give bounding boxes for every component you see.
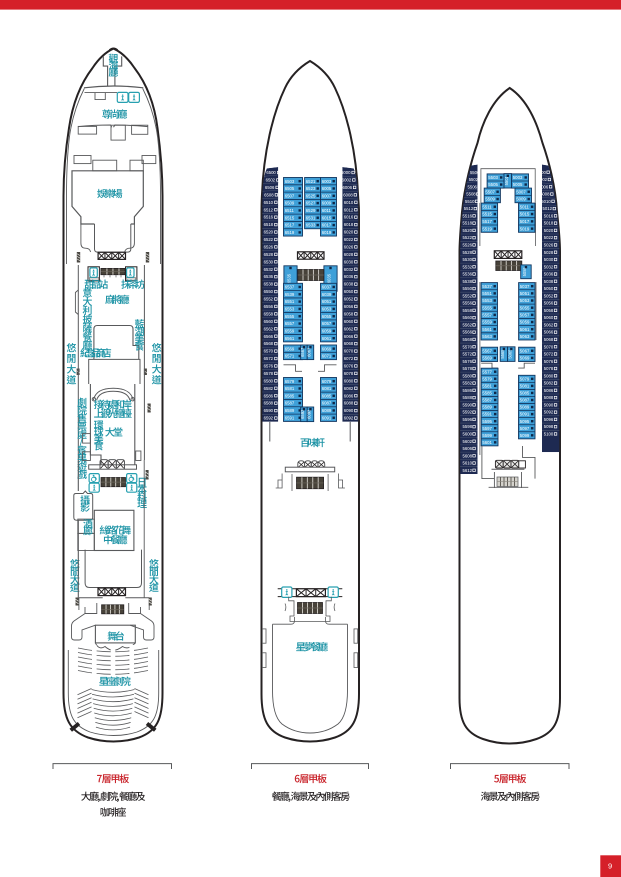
svg-text:5532: 5532 bbox=[463, 264, 473, 269]
svg-text:6529: 6529 bbox=[306, 208, 316, 213]
svg-text:6052: 6052 bbox=[344, 297, 354, 302]
svg-text:6079: 6079 bbox=[322, 379, 332, 384]
svg-text:6055: 6055 bbox=[322, 314, 332, 319]
svg-text:6533: 6533 bbox=[306, 223, 316, 228]
svg-text:5085: 5085 bbox=[520, 391, 530, 396]
svg-text:5612: 5612 bbox=[463, 468, 473, 473]
svg-text:6507: 6507 bbox=[285, 193, 295, 198]
svg-text:6003: 6003 bbox=[322, 179, 332, 184]
svg-text:5052: 5052 bbox=[544, 293, 554, 298]
svg-text:5526: 5526 bbox=[463, 242, 473, 247]
svg-text:5062: 5062 bbox=[544, 322, 554, 327]
svg-text:5591: 5591 bbox=[482, 412, 492, 417]
svg-text:5020: 5020 bbox=[544, 228, 554, 233]
svg-text:5538: 5538 bbox=[463, 279, 473, 284]
svg-text:6580: 6580 bbox=[264, 378, 274, 383]
svg-text:5519: 5519 bbox=[482, 226, 492, 231]
svg-text:5568: 5568 bbox=[463, 337, 473, 342]
svg-text:5516: 5516 bbox=[463, 213, 473, 218]
svg-text:5508: 5508 bbox=[466, 192, 476, 197]
svg-text:5005: 5005 bbox=[513, 182, 523, 187]
svg-text:5060: 5060 bbox=[544, 315, 554, 320]
svg-text:6081: 6081 bbox=[322, 386, 332, 391]
svg-text:5072: 5072 bbox=[544, 352, 554, 357]
svg-text:6520: 6520 bbox=[264, 230, 274, 235]
svg-text:5100: 5100 bbox=[544, 432, 554, 437]
svg-text:5028: 5028 bbox=[544, 250, 554, 255]
svg-text:5550: 5550 bbox=[463, 286, 473, 291]
svg-text:6551: 6551 bbox=[285, 299, 295, 304]
svg-text:6531: 6531 bbox=[306, 215, 316, 220]
svg-text:5597: 5597 bbox=[482, 426, 492, 431]
svg-text:5563: 5563 bbox=[482, 334, 492, 339]
svg-text:6506: 6506 bbox=[265, 185, 275, 190]
svg-text:5559: 5559 bbox=[482, 320, 492, 325]
svg-text:6076: 6076 bbox=[344, 364, 354, 369]
svg-text:5078: 5078 bbox=[544, 366, 554, 371]
svg-text:5087: 5087 bbox=[520, 398, 530, 403]
svg-text:5608: 5608 bbox=[463, 453, 473, 458]
svg-text:6500: 6500 bbox=[266, 170, 276, 175]
svg-text:6535: 6535 bbox=[287, 273, 292, 283]
svg-text:5019: 5019 bbox=[520, 226, 530, 231]
svg-text:5036: 5036 bbox=[544, 272, 554, 277]
svg-text:5587: 5587 bbox=[482, 398, 492, 403]
svg-text:6078: 6078 bbox=[344, 371, 354, 376]
svg-text:5011: 5011 bbox=[520, 204, 530, 209]
svg-text:5561: 5561 bbox=[482, 327, 492, 332]
svg-text:5081: 5081 bbox=[520, 383, 530, 388]
svg-text:5063: 5063 bbox=[520, 334, 530, 339]
svg-text:6576: 6576 bbox=[264, 364, 274, 369]
svg-text:5032: 5032 bbox=[544, 264, 554, 269]
svg-text:6518: 6518 bbox=[264, 222, 274, 227]
svg-text:6516: 6516 bbox=[264, 215, 274, 220]
svg-text:6082: 6082 bbox=[344, 386, 354, 391]
svg-text:5055: 5055 bbox=[520, 305, 530, 310]
svg-text:6590: 6590 bbox=[264, 408, 274, 413]
svg-text:5567: 5567 bbox=[482, 348, 492, 353]
svg-text:6550: 6550 bbox=[264, 289, 274, 294]
svg-text:6008: 6008 bbox=[343, 192, 353, 197]
svg-text:6066: 6066 bbox=[344, 334, 354, 339]
svg-text:6032: 6032 bbox=[344, 267, 354, 272]
svg-text:6526: 6526 bbox=[264, 244, 274, 249]
svg-text:5509: 5509 bbox=[485, 197, 495, 202]
svg-text:6556: 6556 bbox=[264, 304, 274, 309]
svg-text:5500: 5500 bbox=[470, 170, 480, 175]
svg-text:5505: 5505 bbox=[488, 182, 498, 187]
svg-text:6005: 6005 bbox=[322, 186, 332, 191]
svg-text:5592: 5592 bbox=[463, 410, 473, 415]
svg-text:5566: 5566 bbox=[463, 330, 473, 335]
svg-text:6007: 6007 bbox=[322, 193, 332, 198]
svg-text:5059: 5059 bbox=[520, 320, 530, 325]
svg-text:6089: 6089 bbox=[322, 408, 332, 413]
svg-text:5512: 5512 bbox=[464, 206, 474, 211]
svg-text:6058: 6058 bbox=[344, 311, 354, 316]
svg-text:6528: 6528 bbox=[264, 252, 274, 257]
svg-text:5067: 5067 bbox=[520, 348, 530, 353]
svg-text:5026: 5026 bbox=[544, 242, 554, 247]
svg-text:5572: 5572 bbox=[463, 352, 473, 357]
svg-text:5589: 5589 bbox=[482, 405, 492, 410]
svg-text:5008: 5008 bbox=[540, 192, 550, 197]
svg-text:5009: 5009 bbox=[516, 197, 526, 202]
svg-text:5069: 5069 bbox=[520, 356, 530, 361]
svg-text:5590: 5590 bbox=[463, 402, 473, 407]
svg-text:5577: 5577 bbox=[482, 369, 492, 374]
svg-text:6530: 6530 bbox=[264, 259, 274, 264]
svg-text:5000: 5000 bbox=[536, 170, 546, 175]
svg-text:6566: 6566 bbox=[264, 334, 274, 339]
svg-text:6010: 6010 bbox=[344, 200, 354, 205]
svg-text:5038: 5038 bbox=[544, 279, 554, 284]
svg-text:6553: 6553 bbox=[285, 307, 295, 312]
svg-text:6053: 6053 bbox=[322, 307, 332, 312]
svg-text:6515: 6515 bbox=[285, 215, 295, 220]
svg-text:6503: 6503 bbox=[285, 179, 295, 184]
svg-text:6560: 6560 bbox=[264, 319, 274, 324]
svg-text:5562: 5562 bbox=[463, 322, 473, 327]
svg-text:6567: 6567 bbox=[300, 347, 305, 357]
svg-text:6059: 6059 bbox=[322, 328, 332, 333]
svg-text:5030: 5030 bbox=[544, 257, 554, 262]
svg-text:6591: 6591 bbox=[285, 415, 295, 420]
svg-text:6051: 6051 bbox=[322, 299, 332, 304]
svg-text:5536: 5536 bbox=[463, 272, 473, 277]
svg-text:6017: 6017 bbox=[322, 223, 332, 228]
svg-text:5098: 5098 bbox=[544, 424, 554, 429]
svg-text:5551: 5551 bbox=[482, 291, 492, 296]
svg-text:6069: 6069 bbox=[322, 346, 332, 351]
svg-text:5537: 5537 bbox=[482, 284, 492, 289]
svg-text:6011: 6011 bbox=[322, 208, 332, 213]
svg-text:6512: 6512 bbox=[264, 207, 274, 212]
svg-text:5582: 5582 bbox=[463, 381, 473, 386]
svg-text:5580: 5580 bbox=[463, 373, 473, 378]
svg-text:5556: 5556 bbox=[463, 301, 473, 306]
svg-text:5579: 5579 bbox=[482, 376, 492, 381]
svg-text:6026: 6026 bbox=[344, 244, 354, 249]
svg-text:5576: 5576 bbox=[463, 359, 473, 364]
svg-text:6508: 6508 bbox=[264, 192, 274, 197]
svg-text:6592: 6592 bbox=[264, 416, 274, 421]
svg-text:6092: 6092 bbox=[344, 416, 354, 421]
svg-text:5007: 5007 bbox=[516, 189, 526, 194]
svg-text:6539: 6539 bbox=[285, 292, 295, 297]
svg-text:5090: 5090 bbox=[544, 402, 554, 407]
svg-text:5570: 5570 bbox=[463, 344, 473, 349]
svg-text:6510: 6510 bbox=[264, 200, 274, 205]
svg-text:5602: 5602 bbox=[463, 439, 473, 444]
svg-text:5079: 5079 bbox=[520, 376, 530, 381]
svg-text:6060: 6060 bbox=[344, 319, 354, 324]
svg-text:5595: 5595 bbox=[482, 419, 492, 424]
svg-text:5610: 5610 bbox=[463, 461, 473, 466]
svg-text:5601: 5601 bbox=[482, 440, 492, 445]
svg-text:6523: 6523 bbox=[306, 186, 316, 191]
svg-text:5600: 5600 bbox=[463, 432, 473, 437]
svg-text:6071: 6071 bbox=[322, 354, 332, 359]
svg-text:5086: 5086 bbox=[544, 388, 554, 393]
svg-text:6039: 6039 bbox=[322, 292, 332, 297]
svg-text:5552: 5552 bbox=[463, 293, 473, 298]
svg-text:6536: 6536 bbox=[264, 274, 274, 279]
svg-text:6093: 6093 bbox=[306, 409, 311, 419]
svg-text:5585: 5585 bbox=[482, 391, 492, 396]
svg-text:5522: 5522 bbox=[463, 235, 473, 240]
svg-text:5520: 5520 bbox=[463, 228, 473, 233]
svg-text:5510: 5510 bbox=[465, 199, 475, 204]
svg-text:6519: 6519 bbox=[285, 230, 295, 235]
svg-text:6522: 6522 bbox=[264, 237, 274, 242]
svg-text:5099: 5099 bbox=[520, 433, 530, 438]
svg-text:6571: 6571 bbox=[285, 354, 295, 359]
svg-text:6009: 6009 bbox=[322, 201, 332, 206]
svg-text:6080: 6080 bbox=[344, 378, 354, 383]
svg-text:6022: 6022 bbox=[344, 237, 354, 242]
svg-text:6072: 6072 bbox=[344, 356, 354, 361]
svg-text:5016: 5016 bbox=[544, 213, 554, 218]
svg-text:6061: 6061 bbox=[322, 336, 332, 341]
svg-text:5565: 5565 bbox=[500, 349, 505, 359]
svg-text:5080: 5080 bbox=[544, 373, 554, 378]
svg-text:5053: 5053 bbox=[520, 298, 530, 303]
svg-text:6552: 6552 bbox=[264, 297, 274, 302]
svg-text:6030: 6030 bbox=[344, 259, 354, 264]
svg-text:5089: 5089 bbox=[520, 405, 530, 410]
svg-text:5581: 5581 bbox=[482, 383, 492, 388]
svg-text:5588: 5588 bbox=[463, 395, 473, 400]
svg-text:6558: 6558 bbox=[264, 311, 274, 316]
svg-text:6037: 6037 bbox=[322, 285, 332, 290]
svg-text:5091: 5091 bbox=[520, 412, 530, 417]
svg-text:6527: 6527 bbox=[306, 201, 316, 206]
svg-text:6589: 6589 bbox=[285, 408, 295, 413]
svg-text:5095: 5095 bbox=[520, 419, 530, 424]
svg-text:5057: 5057 bbox=[520, 312, 530, 317]
svg-text:5503: 5503 bbox=[488, 175, 498, 180]
svg-text:5012: 5012 bbox=[543, 206, 553, 211]
svg-text:5070: 5070 bbox=[544, 344, 554, 349]
svg-text:6006: 6006 bbox=[343, 185, 353, 190]
svg-text:6555: 6555 bbox=[285, 314, 295, 319]
svg-text:6056: 6056 bbox=[344, 304, 354, 309]
svg-text:6057: 6057 bbox=[322, 321, 332, 326]
svg-text:6572: 6572 bbox=[264, 356, 274, 361]
svg-text:6015: 6015 bbox=[322, 215, 332, 220]
svg-text:6505: 6505 bbox=[285, 186, 295, 191]
svg-text:5578: 5578 bbox=[463, 366, 473, 371]
svg-text:6067: 6067 bbox=[306, 347, 311, 357]
svg-text:5065: 5065 bbox=[507, 349, 512, 359]
svg-text:5599: 5599 bbox=[482, 433, 492, 438]
svg-text:5096: 5096 bbox=[544, 417, 554, 422]
svg-text:6511: 6511 bbox=[285, 208, 295, 213]
svg-text:5502: 5502 bbox=[469, 177, 479, 182]
svg-text:6012: 6012 bbox=[344, 207, 354, 212]
svg-text:5061: 5061 bbox=[520, 327, 530, 332]
svg-text:5518: 5518 bbox=[463, 221, 473, 226]
svg-text:5010: 5010 bbox=[541, 199, 551, 204]
svg-text:5076: 5076 bbox=[544, 359, 554, 364]
svg-text:6521: 6521 bbox=[306, 179, 316, 184]
svg-text:5528: 5528 bbox=[463, 250, 473, 255]
svg-text:6557: 6557 bbox=[285, 321, 295, 326]
svg-text:6016: 6016 bbox=[344, 215, 354, 220]
svg-text:5606: 5606 bbox=[463, 446, 473, 451]
svg-text:5596: 5596 bbox=[463, 417, 473, 422]
svg-text:5066: 5066 bbox=[544, 330, 554, 335]
svg-text:5037: 5037 bbox=[520, 284, 530, 289]
svg-text:5506: 5506 bbox=[467, 184, 477, 189]
svg-text:6588: 6588 bbox=[264, 401, 274, 406]
svg-text:5586: 5586 bbox=[463, 388, 473, 393]
svg-text:5569: 5569 bbox=[482, 356, 492, 361]
svg-text:6570: 6570 bbox=[264, 349, 274, 354]
svg-text:6537: 6537 bbox=[285, 285, 295, 290]
svg-text:5015: 5015 bbox=[520, 212, 530, 217]
svg-text:6581: 6581 bbox=[285, 386, 295, 391]
svg-text:6561: 6561 bbox=[285, 336, 295, 341]
svg-text:5068: 5068 bbox=[544, 337, 554, 342]
svg-text:6000: 6000 bbox=[341, 170, 351, 175]
svg-text:5022: 5022 bbox=[544, 235, 554, 240]
svg-text:6582: 6582 bbox=[264, 386, 274, 391]
svg-text:5517: 5517 bbox=[482, 219, 492, 224]
svg-text:6091: 6091 bbox=[322, 415, 332, 420]
svg-text:5058: 5058 bbox=[544, 308, 554, 313]
svg-text:5507: 5507 bbox=[485, 189, 495, 194]
svg-text:6502: 6502 bbox=[266, 178, 276, 183]
svg-text:5018: 5018 bbox=[544, 221, 554, 226]
svg-text:6532: 6532 bbox=[264, 267, 274, 272]
svg-text:9: 9 bbox=[608, 862, 612, 871]
svg-text:6562: 6562 bbox=[264, 326, 274, 331]
svg-text:5560: 5560 bbox=[463, 315, 473, 320]
svg-text:5092: 5092 bbox=[544, 410, 554, 415]
svg-text:5530: 5530 bbox=[463, 257, 473, 262]
svg-text:6085: 6085 bbox=[322, 393, 332, 398]
svg-text:6088: 6088 bbox=[344, 401, 354, 406]
svg-text:6018: 6018 bbox=[344, 222, 354, 227]
svg-text:6090: 6090 bbox=[344, 408, 354, 413]
svg-text:5082: 5082 bbox=[544, 381, 554, 386]
svg-text:5558: 5558 bbox=[463, 308, 473, 313]
svg-text:6587: 6587 bbox=[285, 401, 295, 406]
svg-text:5553: 5553 bbox=[482, 298, 492, 303]
svg-text:6028: 6028 bbox=[344, 252, 354, 257]
svg-text:6086: 6086 bbox=[344, 393, 354, 398]
svg-text:6517: 6517 bbox=[285, 223, 295, 228]
svg-text:6036: 6036 bbox=[344, 274, 354, 279]
svg-text:6586: 6586 bbox=[264, 393, 274, 398]
svg-text:6038: 6038 bbox=[344, 282, 354, 287]
svg-text:5003: 5003 bbox=[513, 175, 523, 180]
svg-text:5511: 5511 bbox=[482, 204, 492, 209]
svg-text:5056: 5056 bbox=[544, 301, 554, 306]
svg-text:5598: 5598 bbox=[463, 424, 473, 429]
svg-text:6569: 6569 bbox=[285, 346, 295, 351]
svg-text:5557: 5557 bbox=[482, 312, 492, 317]
svg-text:6509: 6509 bbox=[285, 201, 295, 206]
svg-text:5097: 5097 bbox=[520, 426, 530, 431]
svg-text:6020: 6020 bbox=[344, 230, 354, 235]
svg-text:6062: 6062 bbox=[344, 326, 354, 331]
svg-text:6002: 6002 bbox=[342, 178, 352, 183]
svg-text:5050: 5050 bbox=[544, 286, 554, 291]
svg-text:5051: 5051 bbox=[520, 291, 530, 296]
svg-text:6593: 6593 bbox=[300, 409, 305, 419]
svg-text:6578: 6578 bbox=[264, 371, 274, 376]
svg-text:6019: 6019 bbox=[322, 230, 332, 235]
svg-text:6035: 6035 bbox=[327, 273, 332, 283]
svg-text:6538: 6538 bbox=[264, 282, 274, 287]
svg-text:6579: 6579 bbox=[285, 379, 295, 384]
svg-text:5006: 5006 bbox=[539, 184, 549, 189]
svg-text:5555: 5555 bbox=[482, 305, 492, 310]
svg-text:6087: 6087 bbox=[322, 401, 332, 406]
svg-text:5515: 5515 bbox=[482, 212, 492, 217]
svg-text:6559: 6559 bbox=[285, 328, 295, 333]
svg-text:6068: 6068 bbox=[344, 341, 354, 346]
svg-text:6070: 6070 bbox=[344, 349, 354, 354]
svg-text:6050: 6050 bbox=[344, 289, 354, 294]
svg-text:5088: 5088 bbox=[544, 395, 554, 400]
svg-text:6568: 6568 bbox=[264, 341, 274, 346]
svg-text:5002: 5002 bbox=[538, 177, 548, 182]
svg-text:6525: 6525 bbox=[306, 193, 316, 198]
svg-text:5017: 5017 bbox=[520, 219, 530, 224]
svg-text:6585: 6585 bbox=[285, 393, 295, 398]
